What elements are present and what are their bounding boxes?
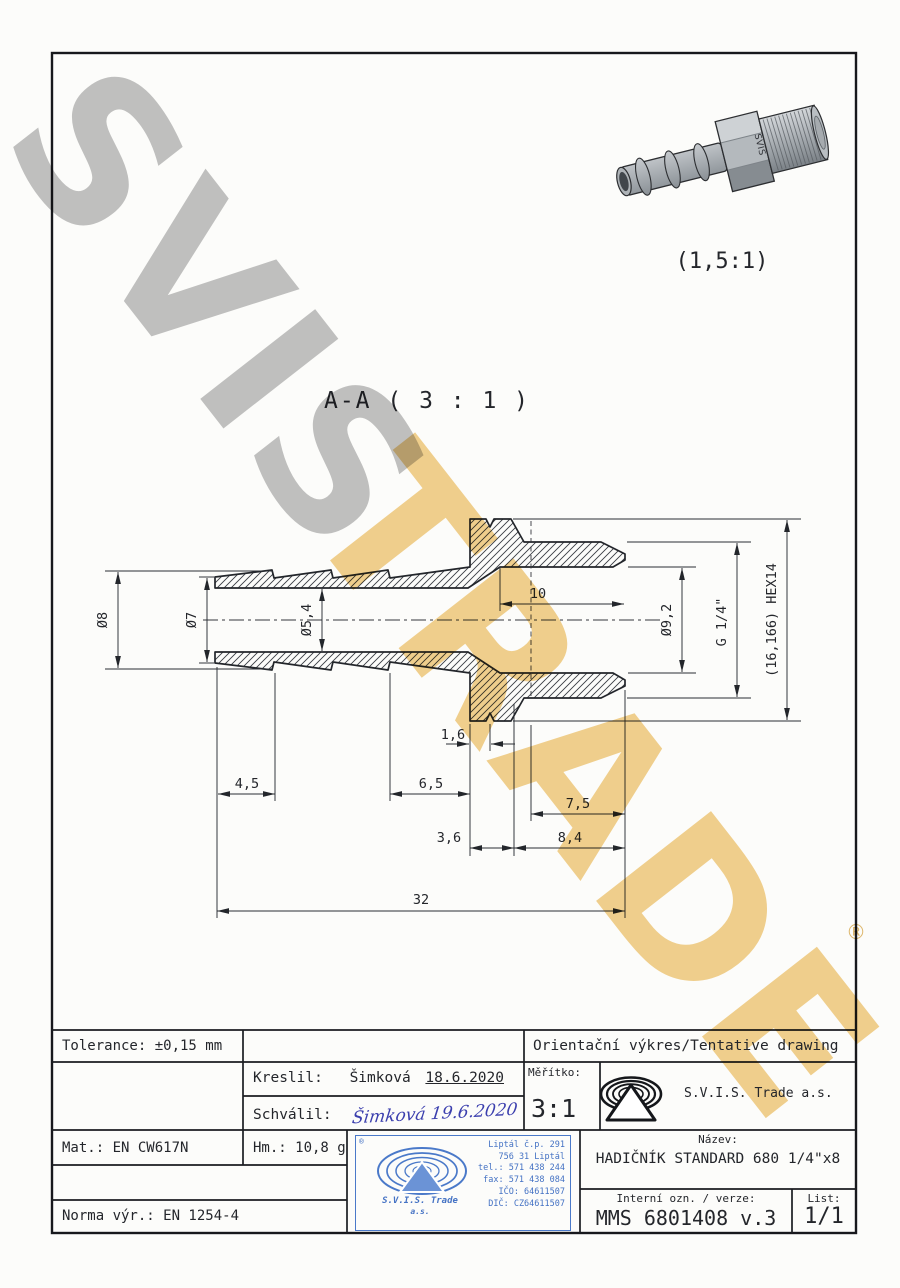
dim-label: 10 — [530, 586, 546, 602]
watermark-registered-icon: ® — [846, 920, 866, 944]
dim-label: 7,5 — [566, 796, 590, 812]
stamp-line: IČO: 64611507 — [478, 1187, 565, 1199]
dim-label: G 1/4" — [714, 598, 730, 647]
tentative-drawing-label: Orientační výkres/Tentative drawing — [533, 1038, 839, 1054]
material-field: Mat.: EN CW617N — [62, 1140, 188, 1156]
pictorial-scale-label: (1,5:1) — [676, 249, 769, 274]
tolerance-field: Tolerance: ±0,15 mm — [62, 1038, 222, 1054]
dim-label: 4,5 — [235, 776, 259, 792]
norma-field: Norma výr.: EN 1254-4 — [62, 1208, 239, 1224]
sheet-frame — [52, 53, 856, 1233]
stamp-line: tel.: 571 438 244 — [478, 1163, 565, 1175]
interni-label: Interní ozn. / verze: — [616, 1192, 755, 1205]
dim-label: Ø8 — [95, 612, 111, 628]
dimension-labels: Ø8 Ø7 Ø5,4 Ø9,2 G 1/4" (16,166) HEX14 10… — [95, 563, 780, 908]
part-section-bottom — [215, 652, 625, 721]
dim-label: 1,6 — [441, 727, 465, 743]
kreslil-label: Kreslil: — [253, 1070, 323, 1086]
part-section-top — [215, 519, 625, 588]
kreslil-date: 18.6.2020 — [425, 1070, 504, 1086]
drawing-sheet: Ø8 Ø7 Ø5,4 Ø9,2 G 1/4" (16,166) HEX14 10… — [0, 0, 900, 1288]
dim-label: Ø9,2 — [659, 604, 675, 637]
stamp-line: 756 31 Liptál — [478, 1152, 565, 1164]
section-title: A-A ( 3 : 1 ) — [324, 388, 530, 414]
dim-label: 6,5 — [419, 776, 443, 792]
section-view — [203, 519, 663, 721]
weight-field: Hm.: 10,8 g — [253, 1140, 346, 1156]
dim-label: 8,4 — [558, 830, 582, 846]
meritko-label: Měřítko: — [528, 1066, 581, 1079]
stamp-company-name: S.V.I.S. Trade — [370, 1196, 470, 1206]
dim-label: Ø7 — [184, 612, 200, 628]
kreslil-name: Šimková — [350, 1070, 411, 1086]
kreslil-row: Kreslil: Šimková 18.6.2020 — [253, 1070, 504, 1086]
schvalil-label: Schválil: — [253, 1107, 332, 1123]
pictorial-view: SVIS — [609, 96, 834, 218]
stamp-line: DIČ: CZ64611507 — [478, 1199, 565, 1211]
dim-label: 32 — [413, 892, 429, 908]
dim-label: (16,166) HEX14 — [764, 563, 780, 677]
part-title: HADIČNÍK STANDARD 680 1/4"x8 — [596, 1151, 840, 1167]
company-name: S.V.I.S. Trade a.s. — [684, 1086, 833, 1101]
list-value: 1/1 — [804, 1204, 844, 1229]
dim-label: 3,6 — [437, 830, 461, 846]
stamp-company-suffix: a.s. — [370, 1207, 470, 1216]
stamp-line: Liptál č.p. 291 — [478, 1140, 565, 1152]
interni-value: MMS 6801408 v.3 — [596, 1206, 777, 1230]
company-stamp: ® S.V.I.S. Trade a.s. Liptál č.p. 291 75… — [355, 1135, 571, 1231]
stamp-line: fax: 571 438 084 — [478, 1175, 565, 1187]
schvalil-row: Schválil: Šimková 19.6.2020 — [253, 1104, 518, 1124]
company-logo — [601, 1078, 661, 1121]
dim-label: Ø5,4 — [299, 604, 315, 637]
stamp-logo — [364, 1144, 480, 1200]
meritko-value: 3:1 — [531, 1094, 576, 1123]
nazev-label: Název: — [698, 1133, 738, 1146]
stamp-contact-block: Liptál č.p. 291 756 31 Liptál tel.: 571 … — [478, 1140, 565, 1210]
